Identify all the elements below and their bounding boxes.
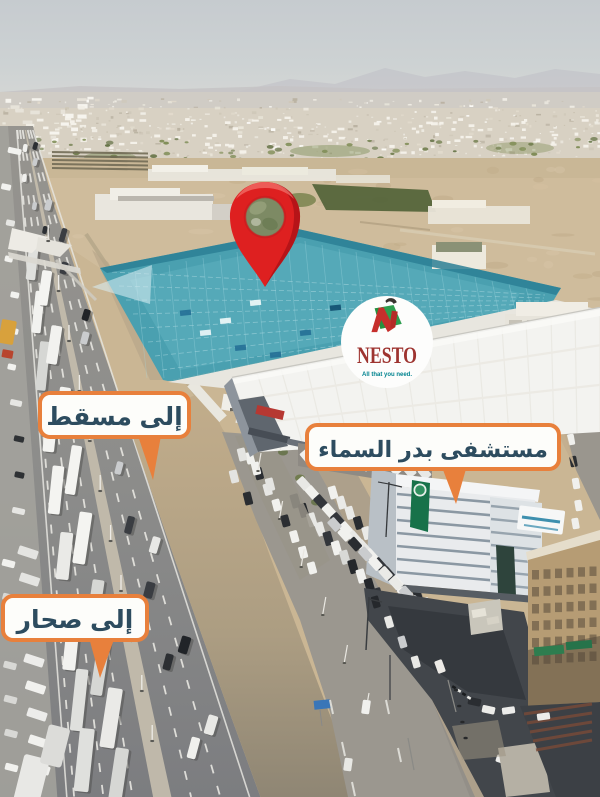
svg-text:NESTO: NESTO <box>357 343 417 368</box>
svg-text:All that you need.: All that you need. <box>362 371 412 378</box>
